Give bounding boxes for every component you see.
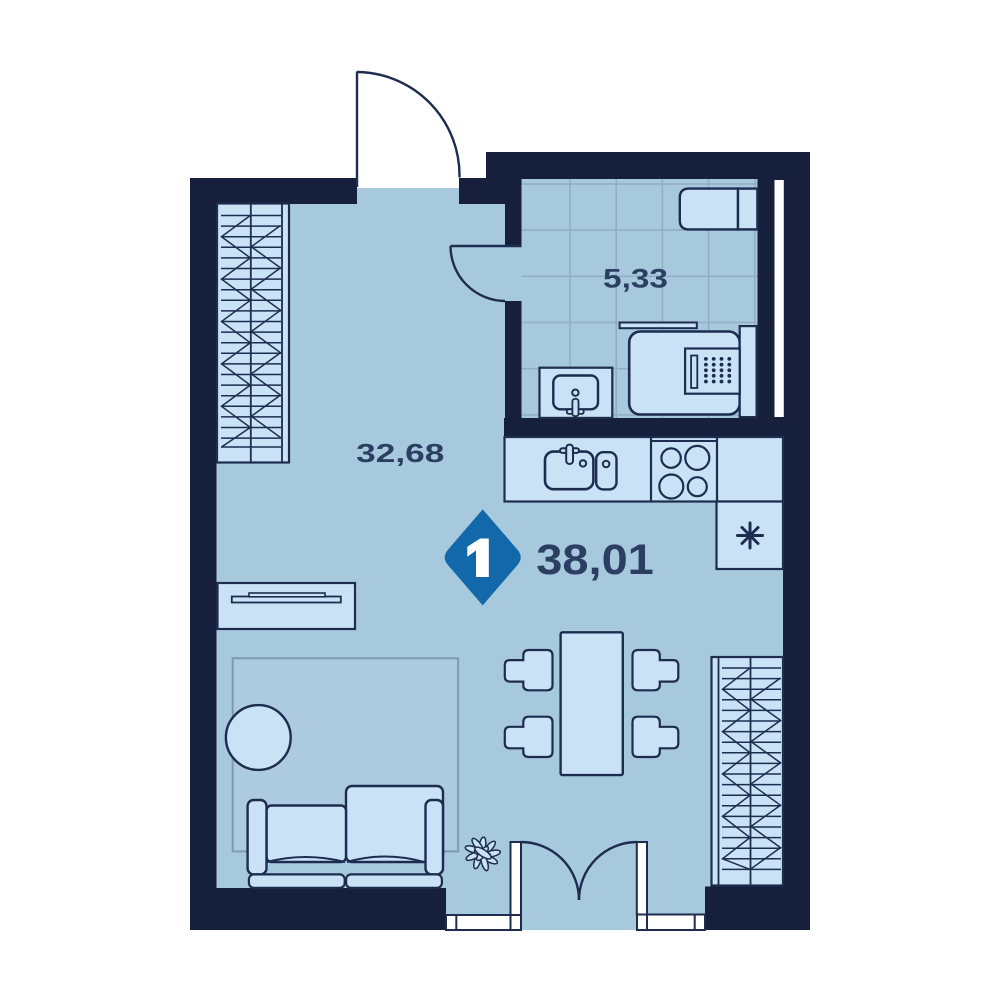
svg-text:32,68: 32,68 [356, 438, 444, 468]
svg-text:5,33: 5,33 [603, 264, 668, 294]
svg-text:38,01: 38,01 [536, 537, 654, 584]
